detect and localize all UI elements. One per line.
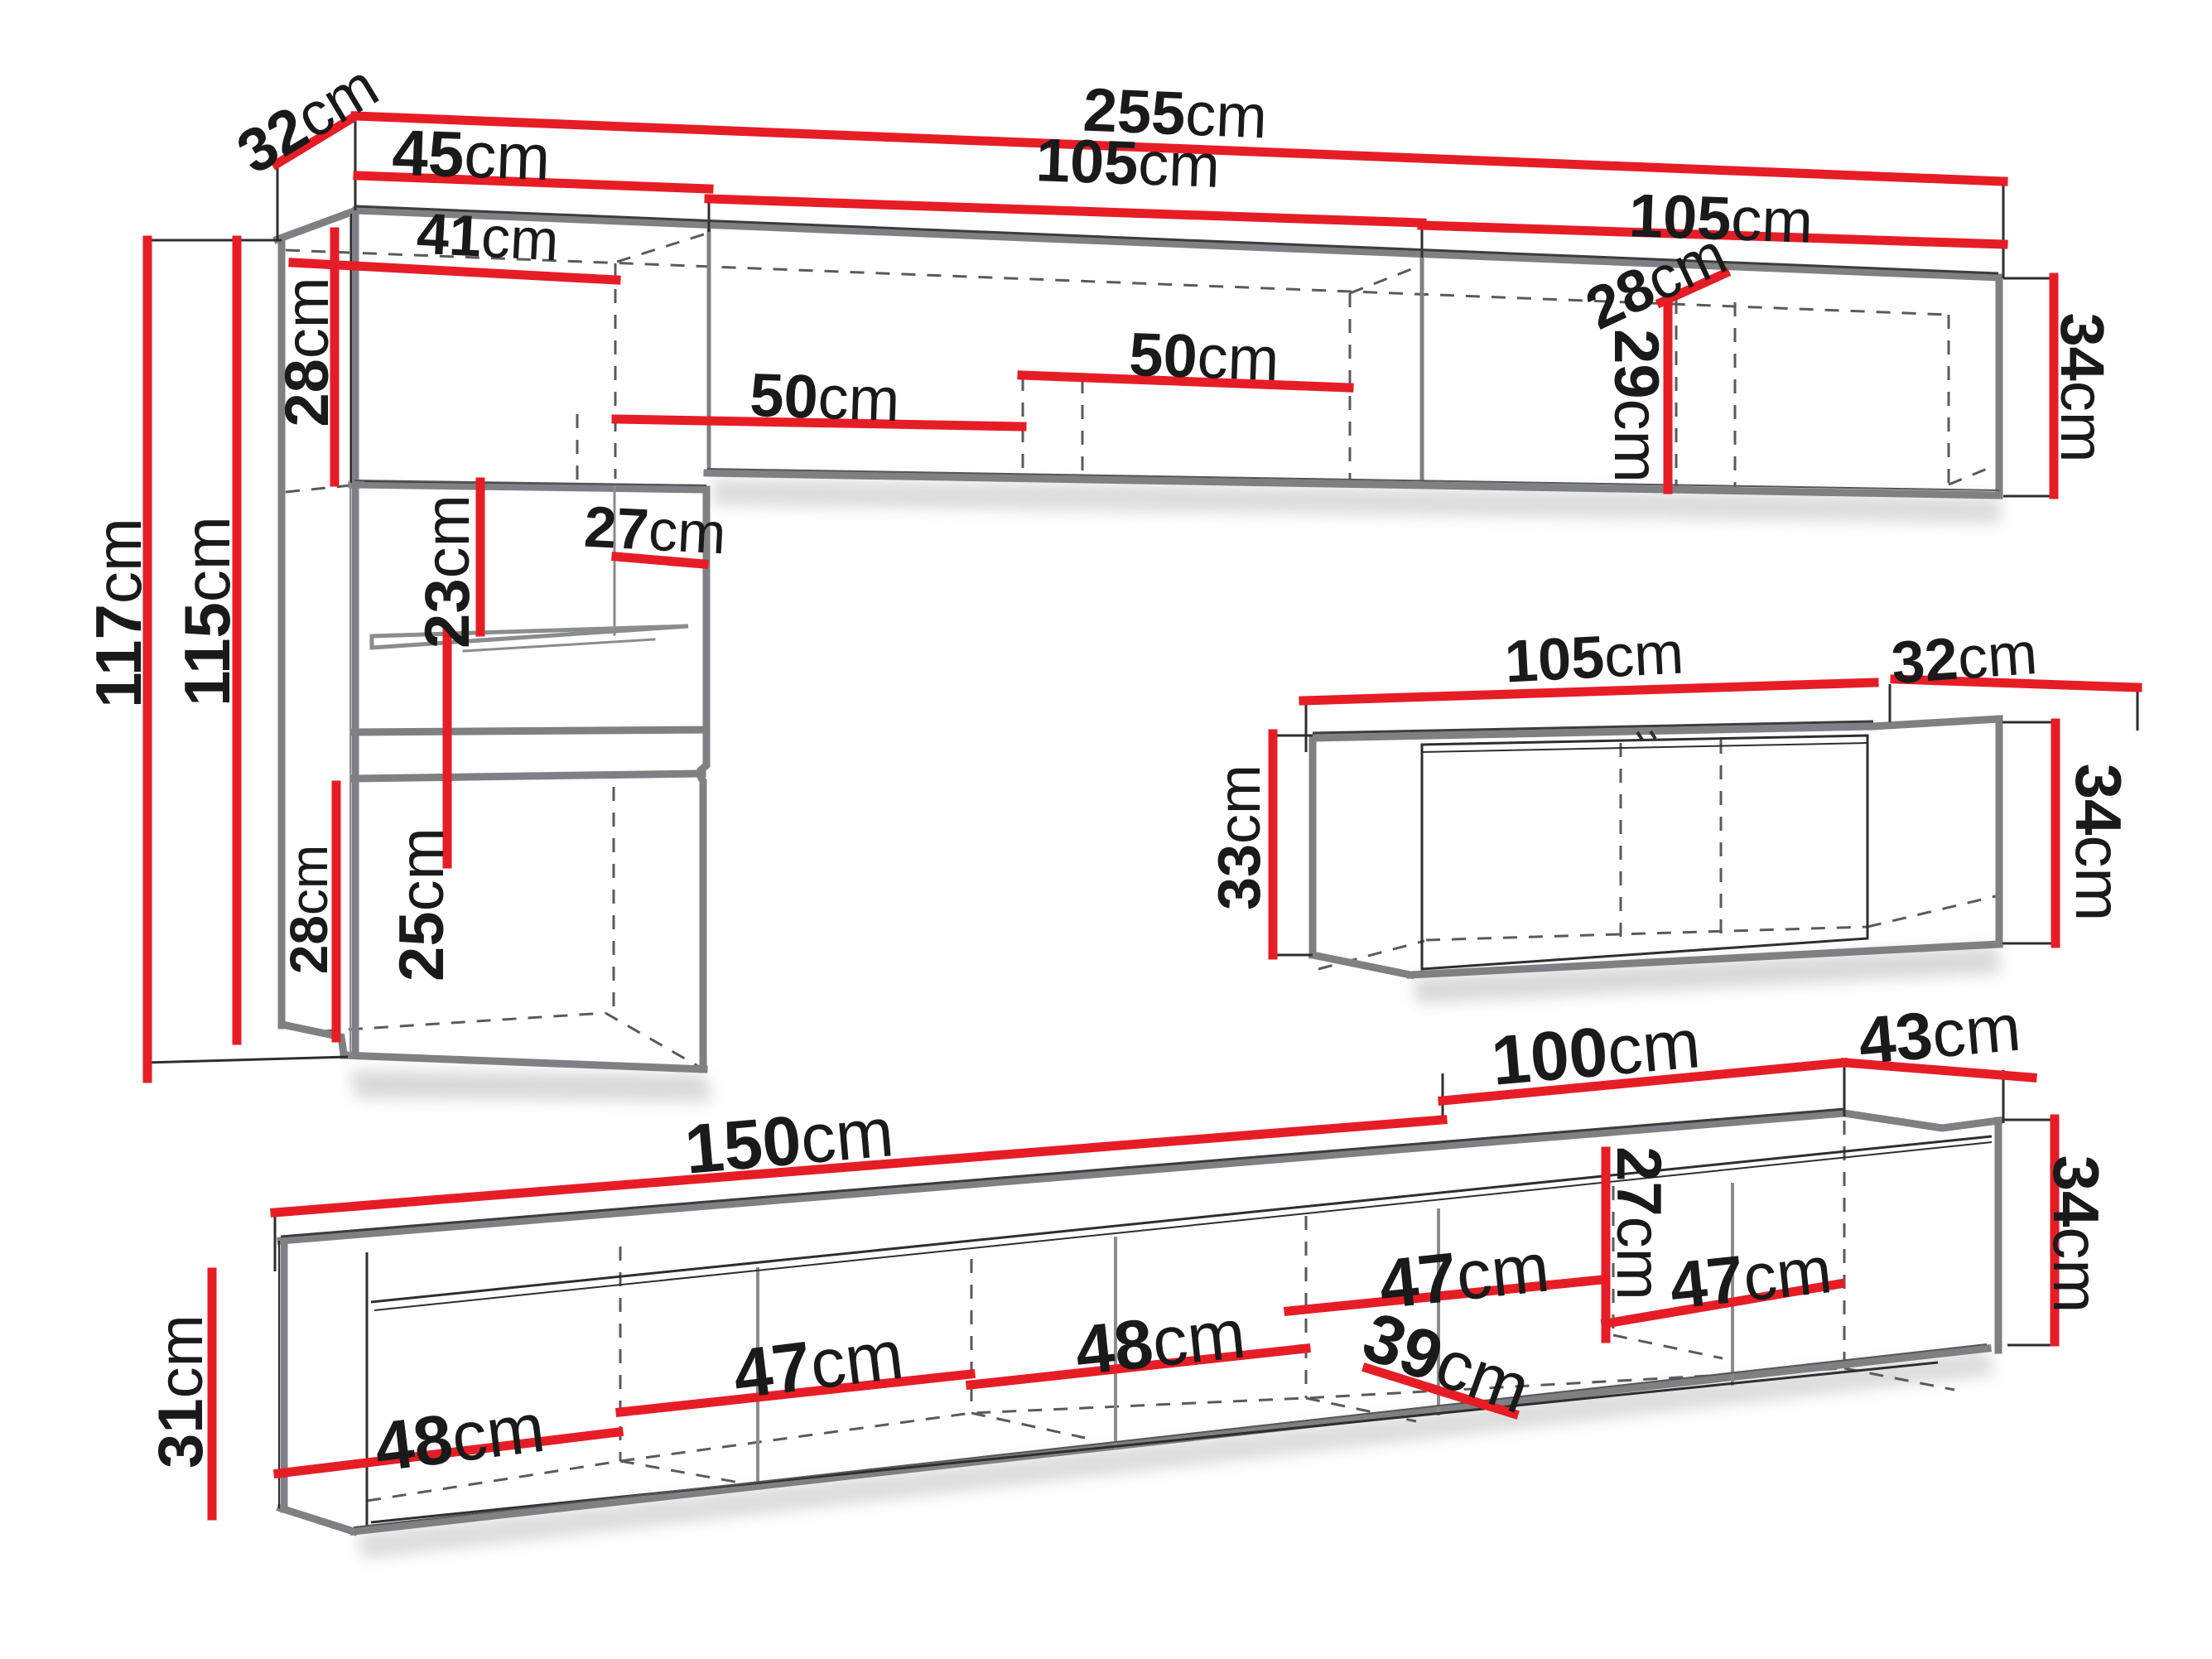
svg-text:34cm: 34cm bbox=[2040, 1155, 2113, 1314]
svg-text:34cm: 34cm bbox=[2062, 764, 2135, 922]
svg-text:45cm: 45cm bbox=[391, 116, 552, 195]
svg-text:50cm: 50cm bbox=[749, 359, 901, 433]
svg-text:43cm: 43cm bbox=[1856, 990, 2024, 1078]
svg-text:105cm: 105cm bbox=[1503, 620, 1685, 695]
svg-text:41cm: 41cm bbox=[415, 201, 560, 273]
svg-text:25cm: 25cm bbox=[387, 827, 457, 981]
svg-text:23cm: 23cm bbox=[412, 494, 483, 649]
svg-text:34cm: 34cm bbox=[2049, 313, 2118, 463]
svg-text:105cm: 105cm bbox=[1628, 181, 1814, 256]
svg-text:27cm: 27cm bbox=[582, 494, 727, 567]
svg-text:117cm: 117cm bbox=[82, 518, 155, 708]
svg-text:28cm: 28cm bbox=[279, 845, 339, 975]
svg-text:33cm: 33cm bbox=[1207, 764, 1273, 910]
svg-text:105cm: 105cm bbox=[1035, 125, 1222, 200]
svg-text:115cm: 115cm bbox=[171, 516, 243, 707]
svg-text:31cm: 31cm bbox=[146, 1314, 216, 1469]
svg-text:32cm: 32cm bbox=[1889, 620, 2039, 697]
svg-text:28cm: 28cm bbox=[272, 277, 341, 427]
svg-text:29cm: 29cm bbox=[1602, 329, 1672, 483]
svg-text:50cm: 50cm bbox=[1128, 319, 1280, 393]
svg-text:27cm: 27cm bbox=[1604, 1146, 1675, 1300]
